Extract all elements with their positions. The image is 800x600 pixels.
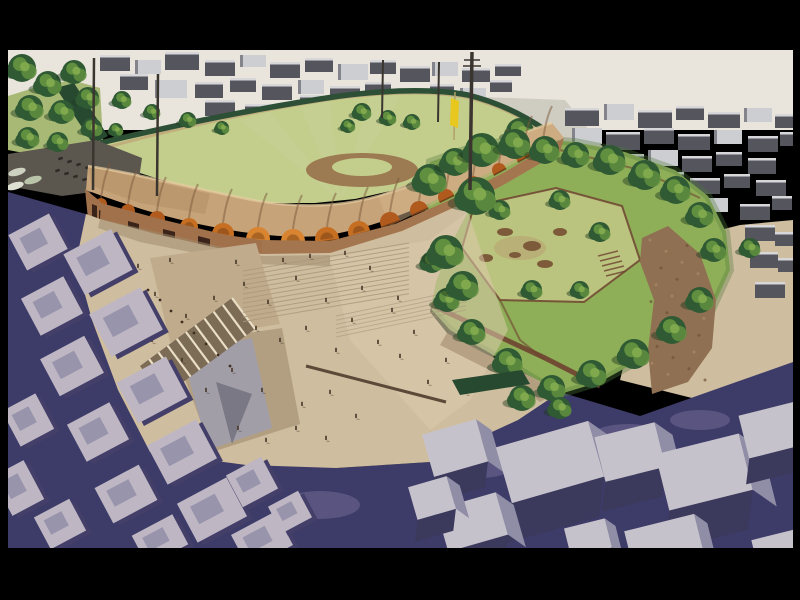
floodlight-mast xyxy=(470,52,472,190)
building-shadow-edge xyxy=(744,108,747,122)
building-roof-edge xyxy=(495,64,521,67)
bird xyxy=(159,299,162,302)
letterbox-bottom xyxy=(0,548,800,600)
bird xyxy=(193,332,196,335)
bird xyxy=(181,321,184,324)
building-roof-edge xyxy=(780,132,793,135)
path-speckle xyxy=(676,278,679,281)
tree-highlight xyxy=(187,116,192,121)
tree-highlight xyxy=(151,108,156,113)
person-shadow xyxy=(353,323,356,324)
person-shadow xyxy=(284,263,287,264)
path-speckle xyxy=(665,250,668,253)
building-roof-edge xyxy=(740,204,770,207)
building-roof-edge xyxy=(195,82,223,85)
path-speckle xyxy=(655,283,658,286)
building-shadow-edge xyxy=(298,80,301,94)
person-shadow xyxy=(215,301,218,302)
building-shadow-edge xyxy=(432,62,435,76)
path-speckle xyxy=(672,356,675,359)
building-roof-edge xyxy=(230,78,256,81)
building xyxy=(298,80,324,94)
person-shadow xyxy=(281,343,284,344)
tree-highlight xyxy=(559,196,566,203)
building xyxy=(155,80,187,98)
facade-opening xyxy=(92,204,97,218)
building-roof-edge xyxy=(775,114,793,117)
person-shadow xyxy=(401,359,404,360)
building-roof-edge xyxy=(682,156,712,159)
building xyxy=(714,130,742,144)
path-speckle xyxy=(697,272,700,275)
tree-highlight xyxy=(579,286,585,292)
tree-highlight xyxy=(674,184,684,194)
person-shadow xyxy=(207,393,210,394)
tree-highlight xyxy=(121,96,127,102)
building-roof-edge xyxy=(165,52,199,55)
person-shadow xyxy=(346,256,349,257)
building xyxy=(744,108,772,122)
tree-highlight xyxy=(520,392,529,401)
building-roof-edge xyxy=(755,282,785,285)
building xyxy=(240,55,266,67)
tree-highlight xyxy=(513,137,523,147)
tree-highlight xyxy=(20,62,30,72)
person-shadow xyxy=(393,313,396,314)
tree-highlight xyxy=(543,144,553,154)
building xyxy=(638,110,672,128)
building-roof-edge xyxy=(772,196,792,199)
building-shadow-edge xyxy=(604,104,607,120)
building-roof-edge xyxy=(676,106,704,109)
person-shadow xyxy=(307,331,310,332)
building-roof-edge xyxy=(120,74,148,77)
person-shadow xyxy=(156,297,159,298)
person-shadow xyxy=(267,443,270,444)
building-roof-edge xyxy=(716,152,742,155)
person-shadow xyxy=(415,335,418,336)
path-speckle xyxy=(698,334,701,337)
building-roof-edge xyxy=(644,128,674,131)
person-shadow xyxy=(237,265,240,266)
bird xyxy=(229,365,232,368)
tree-highlight xyxy=(506,356,516,366)
path-speckle xyxy=(681,261,684,264)
building xyxy=(338,64,368,80)
building-roof-edge xyxy=(400,66,430,69)
tree-highlight xyxy=(221,125,226,130)
yellow-flag xyxy=(450,98,459,128)
bird xyxy=(170,310,173,313)
person-shadow xyxy=(263,393,266,394)
building-roof-edge xyxy=(462,68,490,71)
building-roof-edge xyxy=(330,86,360,89)
building-roof-edge xyxy=(270,62,300,65)
letterbox-top xyxy=(0,0,800,50)
building-roof-edge xyxy=(638,110,672,113)
letterbox-left xyxy=(0,0,8,600)
tree-highlight xyxy=(550,382,559,391)
sculpture xyxy=(523,241,541,251)
building-roof-edge xyxy=(565,108,599,111)
sculpture xyxy=(537,260,553,268)
tree-highlight xyxy=(632,347,642,357)
building-shadow-edge xyxy=(714,130,717,144)
floodlight-mast xyxy=(382,60,383,118)
person-shadow xyxy=(363,291,366,292)
person-shadow xyxy=(327,303,330,304)
tree-highlight xyxy=(60,107,68,115)
tree-highlight xyxy=(470,326,479,335)
path-speckle xyxy=(671,295,674,298)
path-speckle xyxy=(650,300,653,303)
path-speckle xyxy=(703,317,706,320)
floodlight-mast xyxy=(438,62,439,122)
building xyxy=(565,108,599,126)
path-speckle xyxy=(667,373,670,376)
building-roof-edge xyxy=(305,58,333,61)
floodlight-mast xyxy=(93,58,94,190)
building xyxy=(135,60,161,74)
tree-highlight xyxy=(428,173,439,184)
person-shadow xyxy=(429,385,432,386)
tree-highlight xyxy=(411,118,416,123)
building-roof-edge xyxy=(775,232,793,235)
building-roof-edge xyxy=(778,258,793,261)
tree-highlight xyxy=(599,228,606,235)
building-roof-edge xyxy=(708,112,740,115)
tree-highlight xyxy=(444,245,456,257)
tree-highlight xyxy=(749,244,756,251)
path-speckle xyxy=(651,362,654,365)
tree-highlight xyxy=(712,245,720,253)
path-speckle xyxy=(704,379,707,382)
tree-highlight xyxy=(590,368,600,378)
person-shadow xyxy=(153,343,156,344)
person-shadow xyxy=(399,301,402,302)
person-shadow xyxy=(327,441,330,442)
person-shadow xyxy=(239,431,242,432)
building-roof-edge xyxy=(205,100,235,103)
person-shadow xyxy=(331,395,334,396)
building-roof-edge xyxy=(490,80,512,83)
bird xyxy=(217,354,220,357)
path-speckle xyxy=(666,311,669,314)
tree-highlight xyxy=(670,324,680,334)
infield-grass xyxy=(332,158,392,176)
tree-highlight xyxy=(461,279,471,289)
city-cube xyxy=(739,402,800,485)
building-roof-edge xyxy=(748,158,776,161)
tree-highlight xyxy=(480,143,492,155)
screenshot-stage xyxy=(0,0,800,600)
person-shadow xyxy=(379,345,382,346)
tree-highlight xyxy=(347,123,352,128)
person-shadow xyxy=(337,353,340,354)
person-shadow xyxy=(183,363,186,364)
tree-highlight xyxy=(499,206,506,213)
building-roof-edge xyxy=(606,132,640,135)
person-shadow xyxy=(139,269,142,270)
building-shadow-edge xyxy=(240,55,243,67)
building-roof-edge xyxy=(205,60,235,63)
tree-highlight xyxy=(46,78,55,87)
tree-highlight xyxy=(643,168,653,178)
path-speckle xyxy=(686,244,689,247)
building-roof-edge xyxy=(724,174,750,177)
building xyxy=(604,104,634,120)
building-roof-edge xyxy=(262,84,292,87)
path-speckle xyxy=(649,239,652,242)
tree-highlight xyxy=(115,127,120,132)
sculpture xyxy=(553,228,567,236)
stadium-aerial-render xyxy=(0,0,800,600)
tree-highlight xyxy=(608,153,618,163)
tree-highlight xyxy=(28,102,37,111)
building-roof-edge xyxy=(678,134,710,137)
person-shadow xyxy=(311,259,314,260)
person-shadow xyxy=(171,263,174,264)
person-shadow xyxy=(303,407,306,408)
tree-highlight xyxy=(698,209,707,218)
tree-highlight xyxy=(72,67,80,75)
tree-highlight xyxy=(558,403,565,410)
tree-highlight xyxy=(361,108,367,114)
person-shadow xyxy=(297,281,300,282)
tree-highlight xyxy=(387,114,392,119)
path-speckle xyxy=(693,351,696,354)
building-roof-edge xyxy=(100,55,130,58)
building xyxy=(165,52,199,70)
building-shadow-edge xyxy=(135,60,138,74)
path-speckle xyxy=(688,367,691,370)
bird xyxy=(205,343,208,346)
building-roof-edge xyxy=(690,178,720,181)
tree-highlight xyxy=(698,294,707,303)
sculpture xyxy=(497,228,513,236)
person-shadow xyxy=(447,363,450,364)
street-patch xyxy=(670,410,730,430)
person-shadow xyxy=(187,319,190,320)
tree-highlight xyxy=(574,149,583,158)
tree-highlight xyxy=(473,188,486,201)
person-shadow xyxy=(467,395,470,396)
bird xyxy=(147,289,150,292)
building-roof-edge xyxy=(745,225,775,228)
tree-highlight xyxy=(531,286,538,293)
tree-highlight xyxy=(26,133,33,140)
building-roof-edge xyxy=(430,84,454,87)
person-shadow xyxy=(257,331,260,332)
path-speckle xyxy=(660,267,663,270)
building xyxy=(432,62,458,76)
path-speckle xyxy=(656,345,659,348)
person-shadow xyxy=(357,419,360,420)
person-shadow xyxy=(245,287,248,288)
person-shadow xyxy=(233,373,236,374)
building-roof-edge xyxy=(756,180,786,183)
building-shadow-edge xyxy=(338,64,341,80)
building-roof-edge xyxy=(748,136,778,139)
person-shadow xyxy=(371,271,374,272)
sculpture xyxy=(509,252,521,258)
building-roof-edge xyxy=(365,82,391,85)
letterbox-right xyxy=(793,0,800,600)
tree-highlight xyxy=(57,138,64,145)
floodlight-mast xyxy=(157,74,158,196)
person-shadow xyxy=(269,305,272,306)
person-shadow xyxy=(297,431,300,432)
